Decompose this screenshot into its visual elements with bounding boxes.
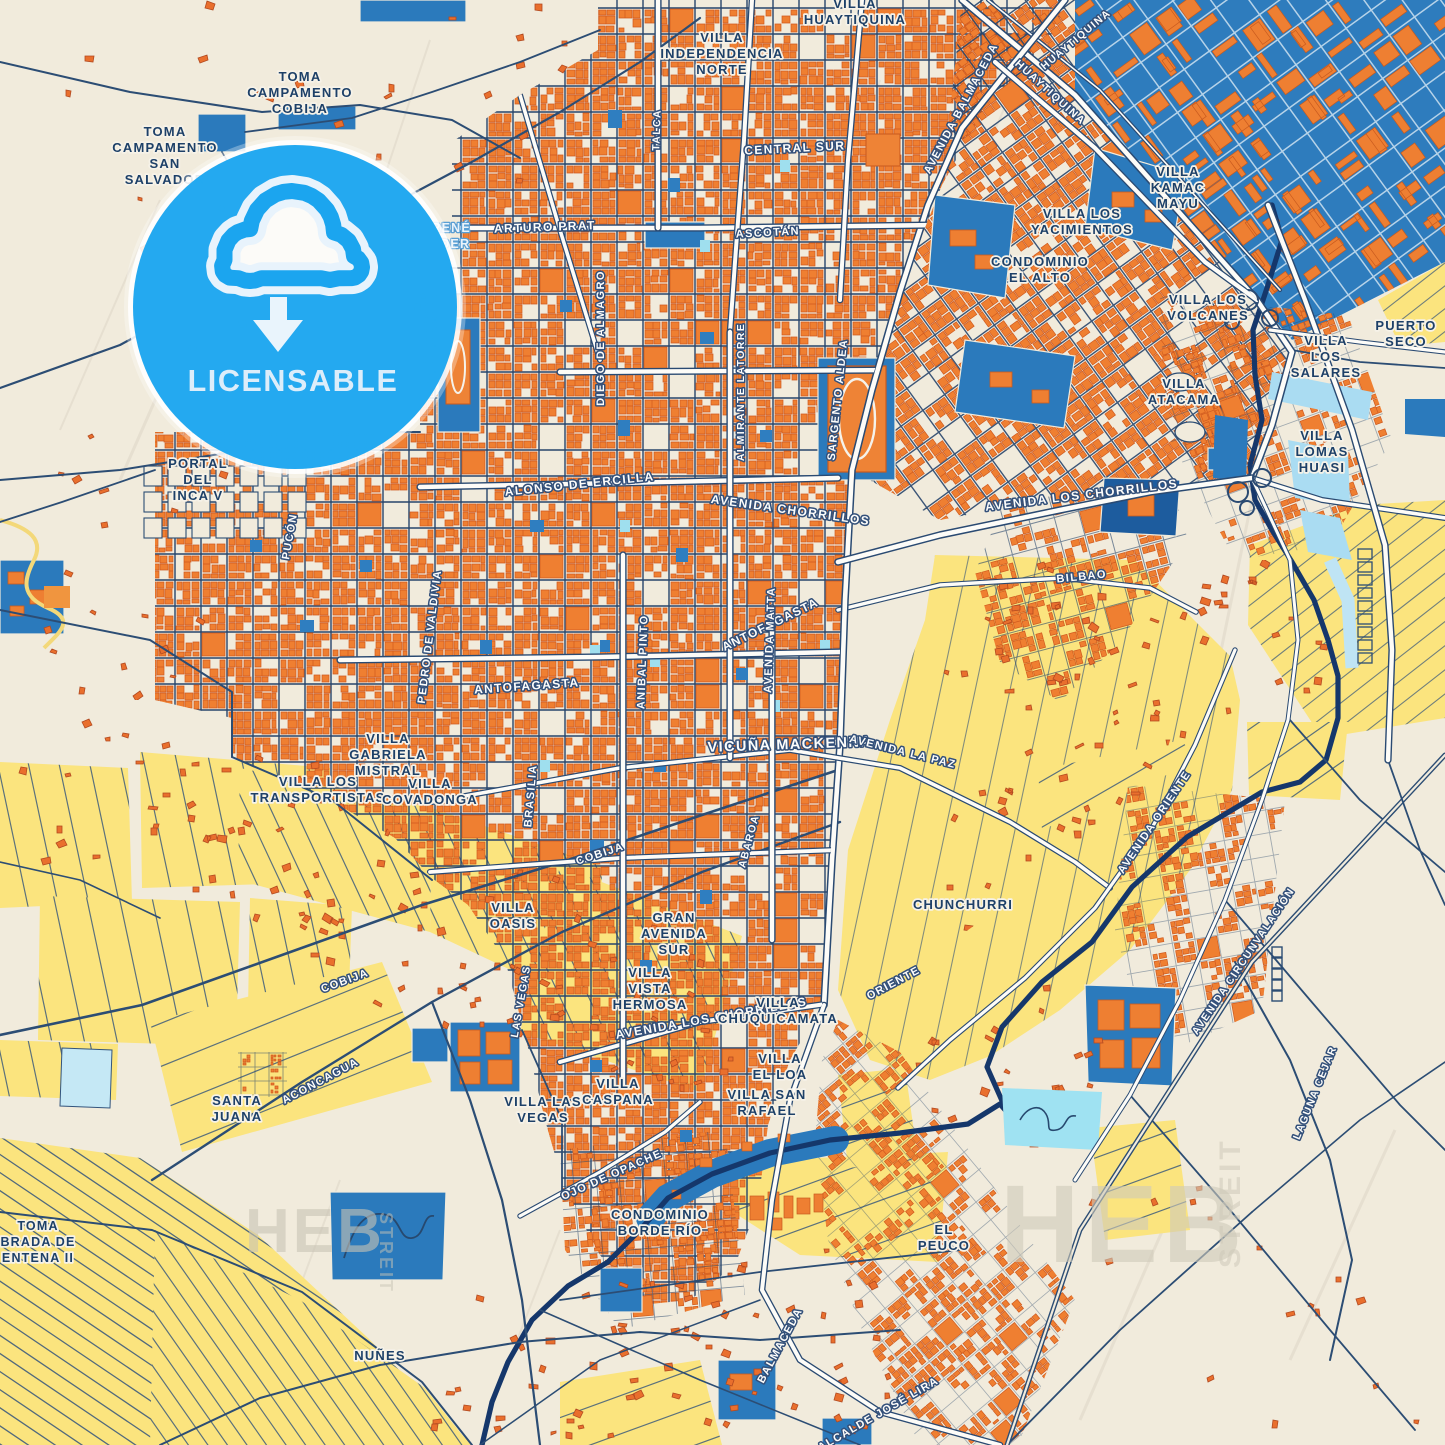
svg-text:VILLA: VILLA bbox=[1304, 333, 1348, 348]
svg-text:TOMA: TOMA bbox=[279, 69, 322, 84]
svg-text:EL: EL bbox=[934, 1222, 953, 1237]
svg-text:OASIS: OASIS bbox=[490, 916, 536, 931]
svg-text:VILLA: VILLA bbox=[833, 0, 877, 11]
svg-text:HEB: HEB bbox=[1000, 1163, 1247, 1286]
svg-text:EL LOA: EL LOA bbox=[753, 1067, 808, 1082]
svg-text:TOMA: TOMA bbox=[17, 1219, 58, 1233]
svg-text:VILLA SAN: VILLA SAN bbox=[728, 1087, 807, 1102]
svg-text:BORDE RÍO: BORDE RÍO bbox=[618, 1223, 702, 1238]
svg-text:INCA V: INCA V bbox=[173, 488, 224, 503]
svg-text:ALMIRANTE LATORRE: ALMIRANTE LATORRE bbox=[735, 323, 747, 461]
svg-text:CONDOMINIO: CONDOMINIO bbox=[991, 254, 1089, 269]
svg-text:VILLA LOS: VILLA LOS bbox=[1043, 206, 1121, 221]
svg-text:VILLA: VILLA bbox=[596, 1076, 640, 1091]
svg-text:LICENSABLE: LICENSABLE bbox=[188, 364, 399, 398]
svg-text:AVENIDA: AVENIDA bbox=[641, 926, 707, 941]
svg-text:SANTA: SANTA bbox=[212, 1093, 262, 1108]
svg-text:KAMAC: KAMAC bbox=[1151, 180, 1205, 195]
svg-text:YACIMIENTOS: YACIMIENTOS bbox=[1031, 222, 1133, 237]
svg-text:GABRIELA: GABRIELA bbox=[349, 747, 427, 762]
svg-text:VILLA LOS: VILLA LOS bbox=[279, 774, 357, 789]
svg-text:HERMOSA: HERMOSA bbox=[613, 997, 688, 1012]
svg-text:INDEPENDENCIA: INDEPENDENCIA bbox=[660, 46, 783, 61]
svg-text:NORTE: NORTE bbox=[696, 62, 748, 77]
svg-text:VOLCANES: VOLCANES bbox=[1167, 308, 1249, 323]
svg-text:VILLA: VILLA bbox=[1300, 428, 1344, 443]
svg-text:ATACAMA: ATACAMA bbox=[1148, 392, 1220, 407]
svg-text:SUR: SUR bbox=[658, 942, 689, 957]
svg-text:TALCA: TALCA bbox=[650, 109, 663, 151]
svg-text:CAMPAMENTO: CAMPAMENTO bbox=[112, 140, 217, 155]
svg-text:EL ALTO: EL ALTO bbox=[1009, 270, 1071, 285]
svg-text:STREIT: STREIT bbox=[376, 1212, 396, 1294]
svg-text:CAMPAMENTO: CAMPAMENTO bbox=[247, 85, 352, 100]
svg-text:VILLA: VILLA bbox=[758, 1051, 802, 1066]
svg-text:SECO: SECO bbox=[1385, 334, 1427, 349]
svg-text:ENTENA II: ENTENA II bbox=[2, 1251, 74, 1265]
svg-text:DIEGO DE ALMAGRO: DIEGO DE ALMAGRO bbox=[595, 270, 607, 406]
svg-text:VILLA: VILLA bbox=[700, 30, 744, 45]
svg-text:JUANA: JUANA bbox=[212, 1109, 263, 1124]
svg-text:VILLA: VILLA bbox=[628, 965, 672, 980]
svg-text:NUÑES: NUÑES bbox=[354, 1348, 406, 1363]
svg-text:STREIT: STREIT bbox=[1214, 1137, 1247, 1268]
svg-text:TOMA: TOMA bbox=[144, 124, 187, 139]
svg-text:CONDOMINIO: CONDOMINIO bbox=[611, 1207, 709, 1222]
svg-text:COVADONGA: COVADONGA bbox=[382, 792, 478, 807]
svg-text:CASPANA: CASPANA bbox=[582, 1092, 654, 1107]
svg-text:GRAN: GRAN bbox=[652, 910, 695, 925]
svg-text:CHUQUICAMATA: CHUQUICAMATA bbox=[718, 1011, 838, 1026]
svg-text:VILLA LAS: VILLA LAS bbox=[504, 1094, 581, 1109]
svg-text:LOS: LOS bbox=[1311, 349, 1341, 364]
svg-text:VEGAS: VEGAS bbox=[517, 1110, 569, 1125]
svg-text:VILLA: VILLA bbox=[756, 995, 800, 1010]
svg-text:HUASI: HUASI bbox=[1299, 460, 1345, 475]
svg-text:CHUNCHURRI: CHUNCHURRI bbox=[913, 897, 1013, 912]
svg-text:VILLA: VILLA bbox=[1162, 376, 1206, 391]
svg-text:DEL: DEL bbox=[183, 472, 213, 487]
svg-text:VILLA: VILLA bbox=[366, 731, 410, 746]
svg-text:VILLA LOS: VILLA LOS bbox=[1169, 292, 1247, 307]
svg-text:SALARES: SALARES bbox=[1291, 365, 1362, 380]
svg-text:HUAYTIQUINA: HUAYTIQUINA bbox=[804, 12, 906, 27]
svg-text:VILLA: VILLA bbox=[1156, 164, 1200, 179]
svg-text:LOMAS: LOMAS bbox=[1296, 444, 1349, 459]
svg-text:SAN: SAN bbox=[149, 156, 180, 171]
svg-text:PEUCO: PEUCO bbox=[918, 1238, 970, 1253]
svg-text:MAYU: MAYU bbox=[1157, 196, 1199, 211]
svg-text:VISTA: VISTA bbox=[628, 981, 671, 996]
svg-text:VILLA: VILLA bbox=[491, 900, 535, 915]
svg-text:BRADA DE: BRADA DE bbox=[0, 1235, 75, 1249]
svg-text:COBIJA: COBIJA bbox=[272, 101, 328, 116]
svg-text:TRANSPORTISTAS: TRANSPORTISTAS bbox=[250, 790, 385, 805]
svg-text:HEB: HEB bbox=[245, 1197, 385, 1266]
svg-text:PUERTO: PUERTO bbox=[1375, 318, 1436, 333]
svg-text:RAFAEL: RAFAEL bbox=[737, 1103, 796, 1118]
svg-text:VILLA: VILLA bbox=[408, 776, 452, 791]
